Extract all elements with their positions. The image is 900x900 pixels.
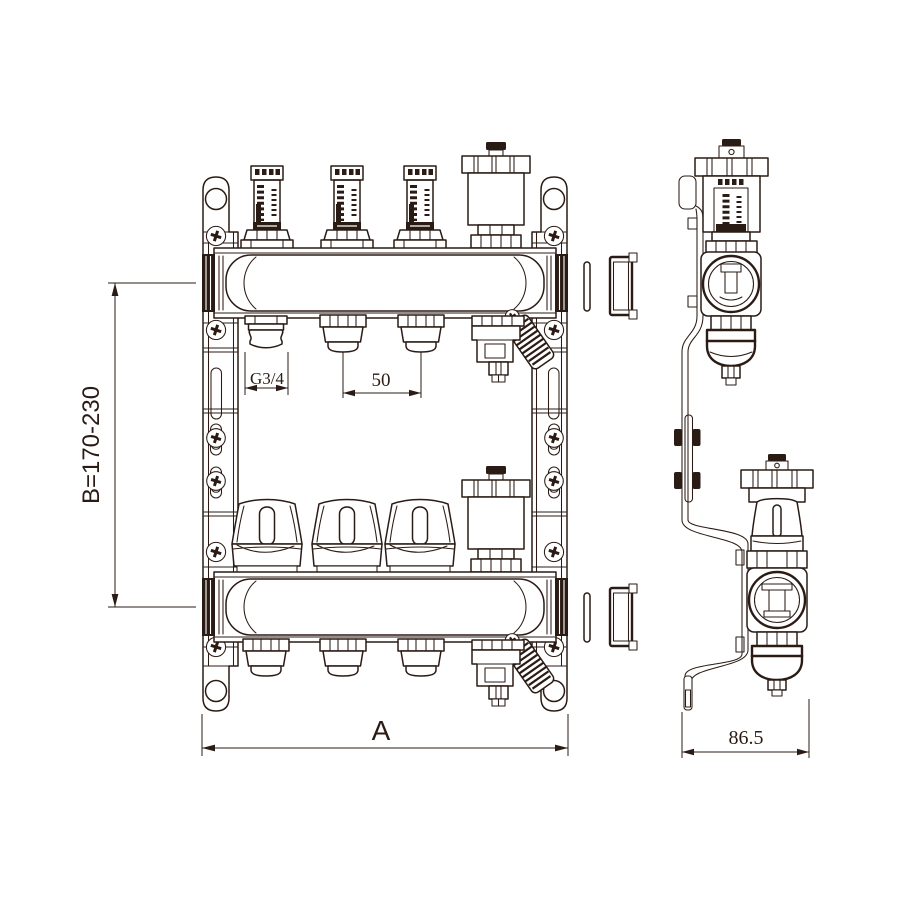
air-vent-bottom <box>462 466 530 572</box>
flow-meter-1 <box>241 166 293 253</box>
dimension-overall-width: A <box>202 714 568 756</box>
valve-knob-3 <box>385 500 455 573</box>
port-g34 <box>245 316 287 348</box>
union-port-bottom-2 <box>320 639 366 676</box>
dimension-depth: 86.5 <box>682 699 809 758</box>
technical-drawing-page: B=170-230 G3/4 50 A <box>0 0 900 900</box>
manifold-bar-top <box>202 248 568 318</box>
dimension-label-width: A <box>372 715 391 746</box>
manifold-technical-drawing: B=170-230 G3/4 50 A <box>0 0 900 900</box>
union-port-bottom-1 <box>243 639 289 676</box>
coupling-parts-bottom <box>584 584 637 650</box>
air-vent-top <box>462 142 530 248</box>
dimension-port-spacing: 50 <box>343 352 421 398</box>
side-view <box>674 139 813 710</box>
side-assembly-top <box>695 139 768 385</box>
union-port-top-3 <box>398 315 444 352</box>
valve-knob-2 <box>312 500 382 573</box>
valve-knob-1 <box>232 500 302 573</box>
flow-meter-2 <box>321 166 373 253</box>
union-port-top-2 <box>320 315 366 352</box>
coupling-parts-top <box>584 253 637 319</box>
side-assembly-bottom <box>741 454 813 696</box>
dimension-label-spacing: 50 <box>372 370 391 391</box>
front-view <box>202 142 568 711</box>
dimension-height-range: B=170-230 <box>78 283 196 607</box>
dimension-label-thread: G3/4 <box>250 369 285 388</box>
dimension-label-depth: 86.5 <box>729 727 764 749</box>
manifold-bar-bottom <box>202 572 568 642</box>
dimension-label-height: B=170-230 <box>78 386 105 504</box>
dimension-port-thread: G3/4 <box>245 352 288 395</box>
union-port-bottom-3 <box>398 639 444 676</box>
flow-meter-3 <box>394 166 446 253</box>
